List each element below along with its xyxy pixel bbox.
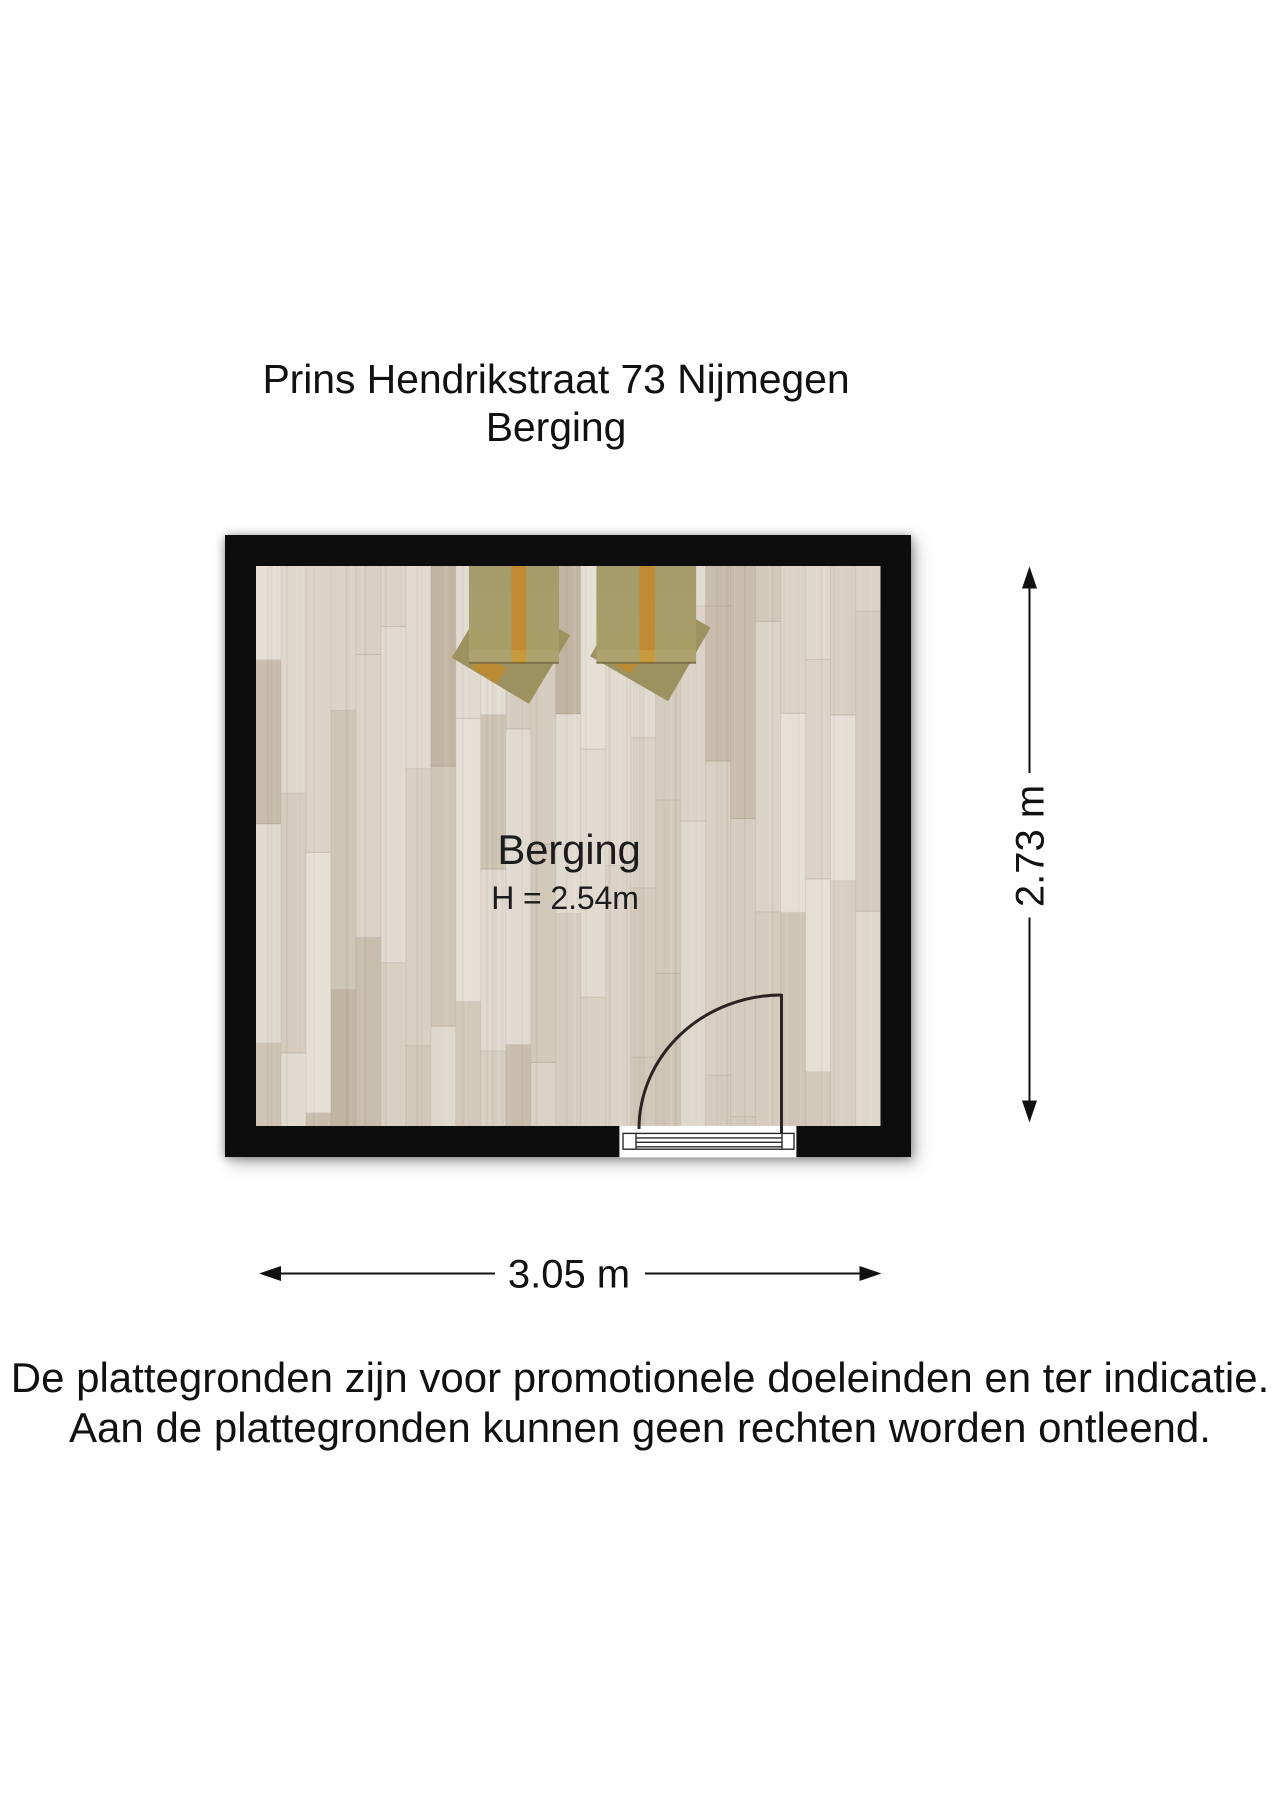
svg-text:3.05 m: 3.05 m [508, 1253, 630, 1297]
svg-text:2.73 m: 2.73 m [1009, 785, 1053, 907]
